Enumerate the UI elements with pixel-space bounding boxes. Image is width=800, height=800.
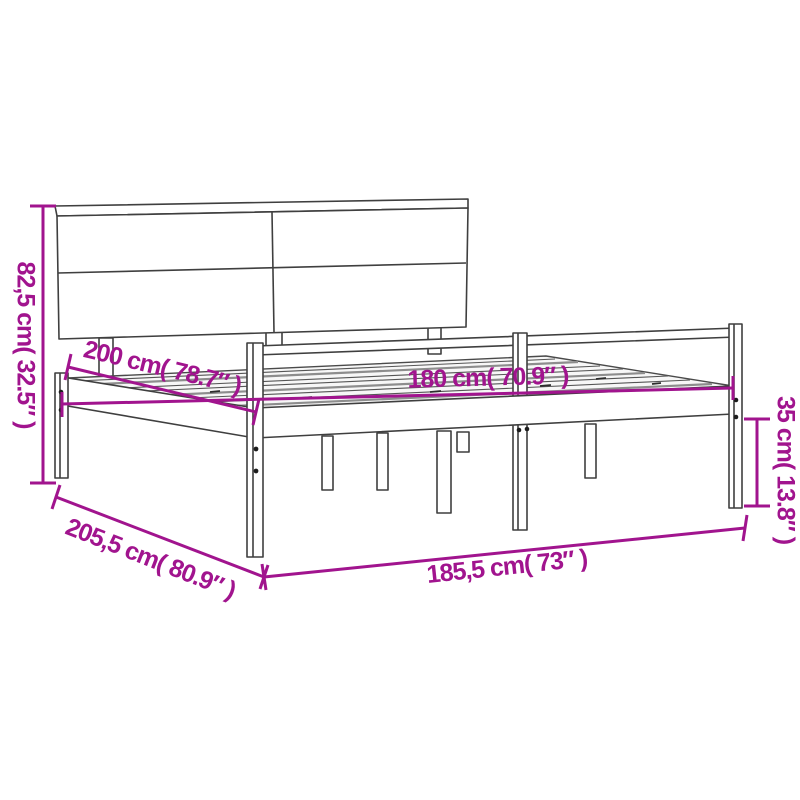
dimension-headboard-height: 82,5 cm( 32.5″ ) <box>11 206 56 483</box>
dimension-end-tick <box>262 564 266 590</box>
headboard-panel <box>57 208 468 339</box>
dimension-label: 82,5 cm( 32.5″ ) <box>11 262 39 430</box>
dimension-frame-width: 185,5 cm( 73″ ) <box>262 515 747 590</box>
dimension-end-tick <box>743 515 747 541</box>
dimension-frame-length: 205,5 cm( 80.9″ ) <box>52 485 268 605</box>
rear-legs <box>322 424 596 513</box>
diagram-canvas: 82,5 cm( 32.5″ ) 200 cm( 78.7″ ) 180 cm(… <box>0 0 800 800</box>
headboard <box>55 199 468 339</box>
dimension-leg-height: 35 cm( 13.8″ ) <box>744 396 799 545</box>
dimension-label: 35 cm( 13.8″ ) <box>771 396 799 545</box>
bed-dimension-diagram: 82,5 cm( 32.5″ ) 200 cm( 78.7″ ) 180 cm(… <box>0 0 800 800</box>
head-left-post <box>55 373 68 478</box>
dimension-label: 180 cm( 70.9″ ) <box>407 361 569 393</box>
far-top-rail <box>256 328 736 355</box>
